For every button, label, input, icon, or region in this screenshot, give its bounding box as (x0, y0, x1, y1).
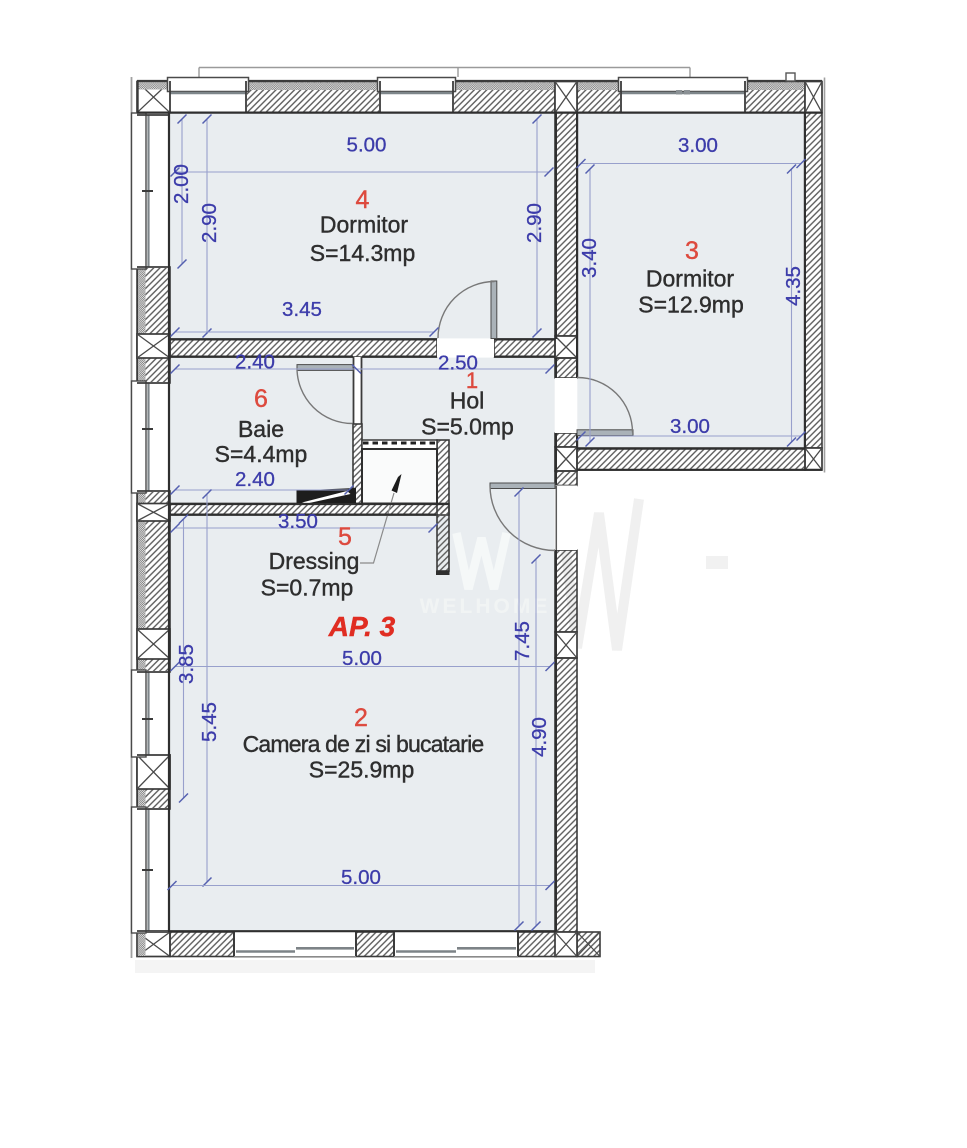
svg-text:3.00: 3.00 (670, 415, 710, 438)
svg-text:7.45: 7.45 (511, 621, 534, 661)
svg-text:S=12.9mp: S=12.9mp (638, 292, 744, 318)
svg-text:Hol: Hol (450, 388, 485, 414)
svg-text:S=25.9mp: S=25.9mp (309, 757, 415, 783)
svg-text:5.00: 5.00 (342, 647, 382, 670)
svg-text:Dormitor: Dormitor (646, 266, 735, 292)
svg-text:2.90: 2.90 (198, 203, 221, 243)
svg-text:4.90: 4.90 (528, 717, 551, 757)
svg-text:2.00: 2.00 (170, 164, 193, 204)
svg-text:Dressing: Dressing (269, 548, 360, 574)
svg-text:Dormitor: Dormitor (320, 212, 409, 238)
svg-text:3.45: 3.45 (282, 298, 322, 321)
svg-text:S=5.0mp: S=5.0mp (421, 414, 514, 440)
svg-text:2.40: 2.40 (235, 468, 275, 491)
svg-text:3.50: 3.50 (278, 510, 318, 533)
svg-text:Baie: Baie (238, 416, 284, 442)
svg-text:2.90: 2.90 (523, 203, 546, 243)
svg-text:3.00: 3.00 (678, 134, 718, 157)
svg-text:2.40: 2.40 (235, 351, 275, 374)
svg-text:3.40: 3.40 (578, 238, 601, 278)
svg-text:S=4.4mp: S=4.4mp (215, 441, 308, 467)
svg-text:S=0.7mp: S=0.7mp (261, 575, 354, 601)
svg-text:6: 6 (254, 385, 268, 413)
svg-text:WELHOME: WELHOME (420, 595, 551, 618)
svg-text:3: 3 (685, 237, 699, 265)
svg-text:5: 5 (338, 523, 352, 551)
svg-text:4: 4 (356, 186, 370, 214)
svg-text:AP. 3: AP. 3 (328, 611, 396, 642)
svg-text:5.45: 5.45 (198, 702, 221, 742)
svg-text:5.00: 5.00 (341, 866, 381, 889)
svg-text:4.35: 4.35 (782, 266, 805, 306)
svg-text:S=14.3mp: S=14.3mp (310, 240, 416, 266)
svg-text:5.00: 5.00 (347, 134, 387, 157)
svg-text:2: 2 (354, 704, 368, 732)
svg-text:3.85: 3.85 (175, 644, 198, 684)
svg-text:Camera de zi si bucatarie: Camera de zi si bucatarie (243, 731, 484, 757)
